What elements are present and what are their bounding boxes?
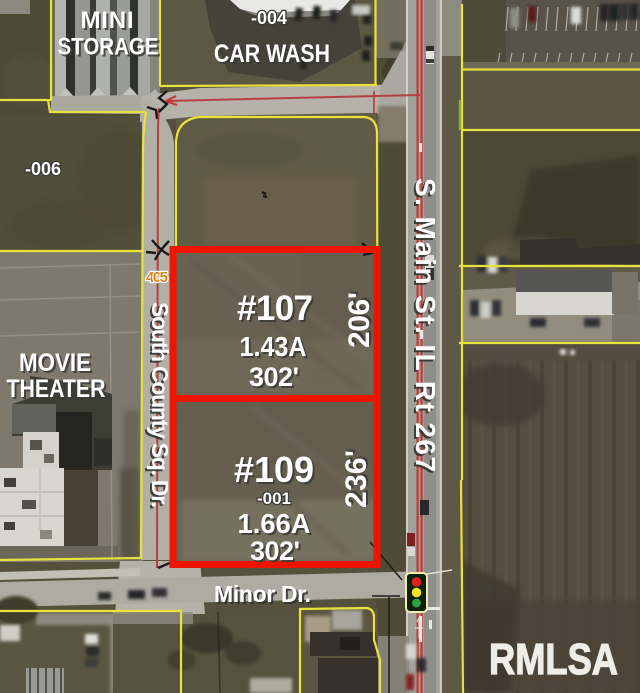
svg-text:-006: -006 [25,159,61,179]
svg-text:-001: -001 [257,489,291,508]
svg-text:-004: -004 [251,8,287,28]
svg-text:#107: #107 [237,289,313,328]
svg-text:206': 206' [343,292,376,348]
svg-text:STORAGE: STORAGE [58,34,159,61]
svg-text:South County Sq. Dr.: South County Sq. Dr. [147,302,173,508]
svg-text:1.66A: 1.66A [238,508,311,539]
svg-text:MOVIE: MOVIE [19,349,91,377]
svg-text:236': 236' [340,450,373,508]
svg-text:THEATER: THEATER [7,375,106,403]
svg-text:Minor Dr.: Minor Dr. [214,581,311,607]
svg-text:405: 405 [146,269,168,286]
svg-text:MINI: MINI [81,7,134,34]
svg-text:#109: #109 [234,449,314,490]
svg-text:CAR WASH: CAR WASH [214,40,330,68]
svg-text:1.43A: 1.43A [240,331,307,362]
svg-text:302': 302' [250,536,300,566]
svg-text:302': 302' [249,362,299,392]
svg-text:RMLSA: RMLSA [489,635,618,684]
